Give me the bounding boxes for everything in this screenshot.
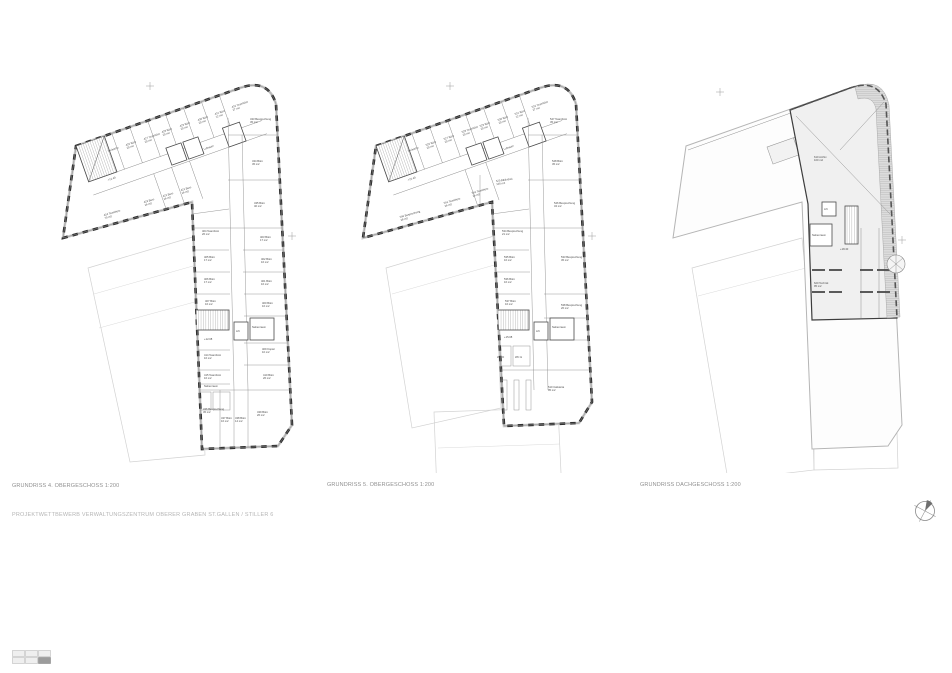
- north-arrow-icon: [905, 492, 945, 532]
- floorplan-4-obergeschoss: Teeküche426 Büro20 m2427 Teambüro20 m242…: [52, 78, 302, 478]
- room-label: Nebenraum: [812, 233, 827, 237]
- room-label: +12.08: [204, 337, 213, 341]
- floorplan-4-og-svg: Teeküche426 Büro20 m2427 Teambüro20 m242…: [52, 78, 302, 473]
- stair-core: [193, 310, 229, 330]
- room-label: Lift: [536, 329, 540, 333]
- sheet-index-legend: [12, 650, 52, 664]
- plan-caption-dach: GRUNDRISS DACHGESCHOSS 1:200: [640, 482, 741, 488]
- room-label: Lift: [824, 207, 828, 211]
- floorplan-dach-svg: 610 Archiv100 m2LiftNebenraum+18.40620 T…: [662, 78, 912, 473]
- neighbor-building-outline: [88, 236, 205, 462]
- floorplan-dachgeschoss: 610 Archiv100 m2LiftNebenraum+18.40620 T…: [662, 78, 912, 478]
- sheet-index-active-cell: [39, 658, 51, 664]
- project-title: PROJEKTWETTBEWERB VERWALTUNGSZENTRUM OBE…: [12, 512, 274, 518]
- room-label: WC D: [497, 355, 504, 359]
- spiral-stair: [887, 255, 905, 273]
- plan-caption-5-og: GRUNDRISS 5. OBERGESCHOSS 1:200: [327, 482, 434, 488]
- room-label: Lift: [236, 329, 240, 333]
- room-label: +15.08: [504, 335, 513, 339]
- service-core: [250, 318, 274, 340]
- floorplan-5-obergeschoss: Teeküche526 Büro20 m2527 Büro20 m2528 Te…: [352, 78, 602, 478]
- room-label: +18.40: [840, 247, 849, 251]
- plan-caption-4-og: GRUNDRISS 4. OBERGESCHOSS 1:200: [12, 483, 119, 489]
- stair-core: [845, 206, 858, 244]
- room-label: Nebenraum: [252, 325, 267, 329]
- room-label: Nebenraum: [552, 325, 567, 329]
- room-label: Nebenraum: [204, 384, 219, 388]
- drawing-sheet: Teeküche426 Büro20 m2427 Teambüro20 m242…: [0, 0, 952, 673]
- floorplan-5-og-svg: Teeküche526 Büro20 m2527 Büro20 m2528 Te…: [352, 78, 602, 473]
- service-core: [550, 318, 574, 340]
- room-label: WC H: [515, 355, 522, 359]
